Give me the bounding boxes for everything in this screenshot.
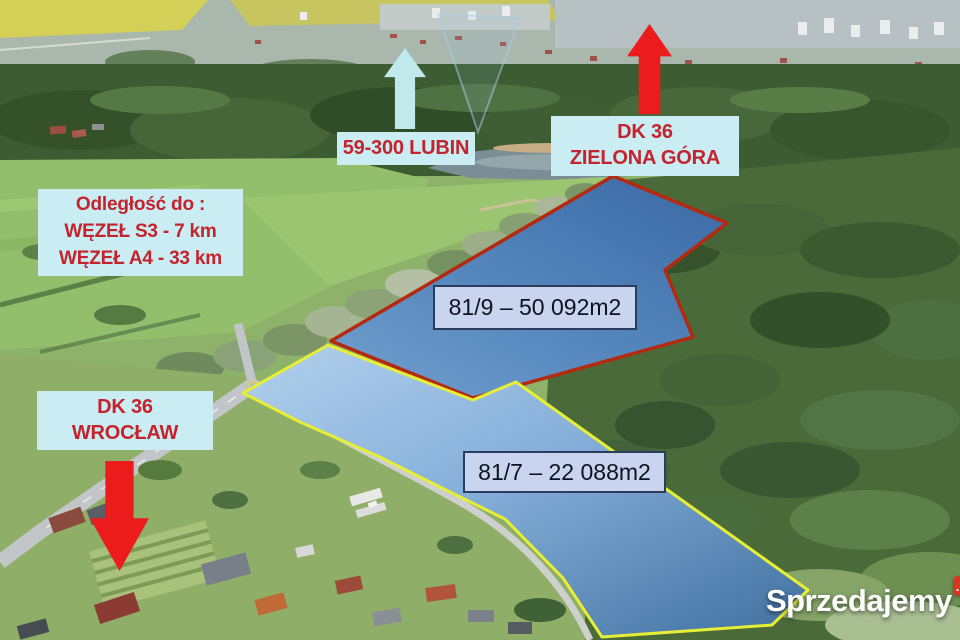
distance-item-a4: WĘZEŁ A4 - 33 km — [38, 245, 243, 272]
watermark-text: Sprzedajemy — [766, 584, 952, 618]
lubin-label: 59-300 LUBIN — [337, 132, 475, 165]
zielona-gora-city: ZIELONA GÓRA — [551, 145, 739, 171]
distance-title: Odległość do : — [38, 191, 243, 218]
lubin-box: 59-300 LUBIN — [337, 132, 475, 165]
plot-81-9-label: 81/9 – 50 092m2 — [433, 285, 637, 330]
watermark-badge: .pl — [953, 576, 960, 596]
wroclaw-road: DK 36 — [37, 394, 213, 420]
wroclaw-city: WROCŁAW — [37, 420, 213, 446]
zielona-gora-box: DK 36 ZIELONA GÓRA — [551, 116, 739, 176]
distance-item-s3: WĘZEŁ S3 - 7 km — [38, 218, 243, 245]
zielona-gora-road: DK 36 — [551, 119, 739, 145]
plot-81-7-label: 81/7 – 22 088m2 — [463, 451, 666, 493]
wroclaw-box: DK 36 WROCŁAW — [37, 391, 213, 450]
watermark: Sprzedajemy .pl — [766, 584, 960, 618]
distance-box: Odległość do : WĘZEŁ S3 - 7 km WĘZEŁ A4 … — [38, 189, 243, 276]
